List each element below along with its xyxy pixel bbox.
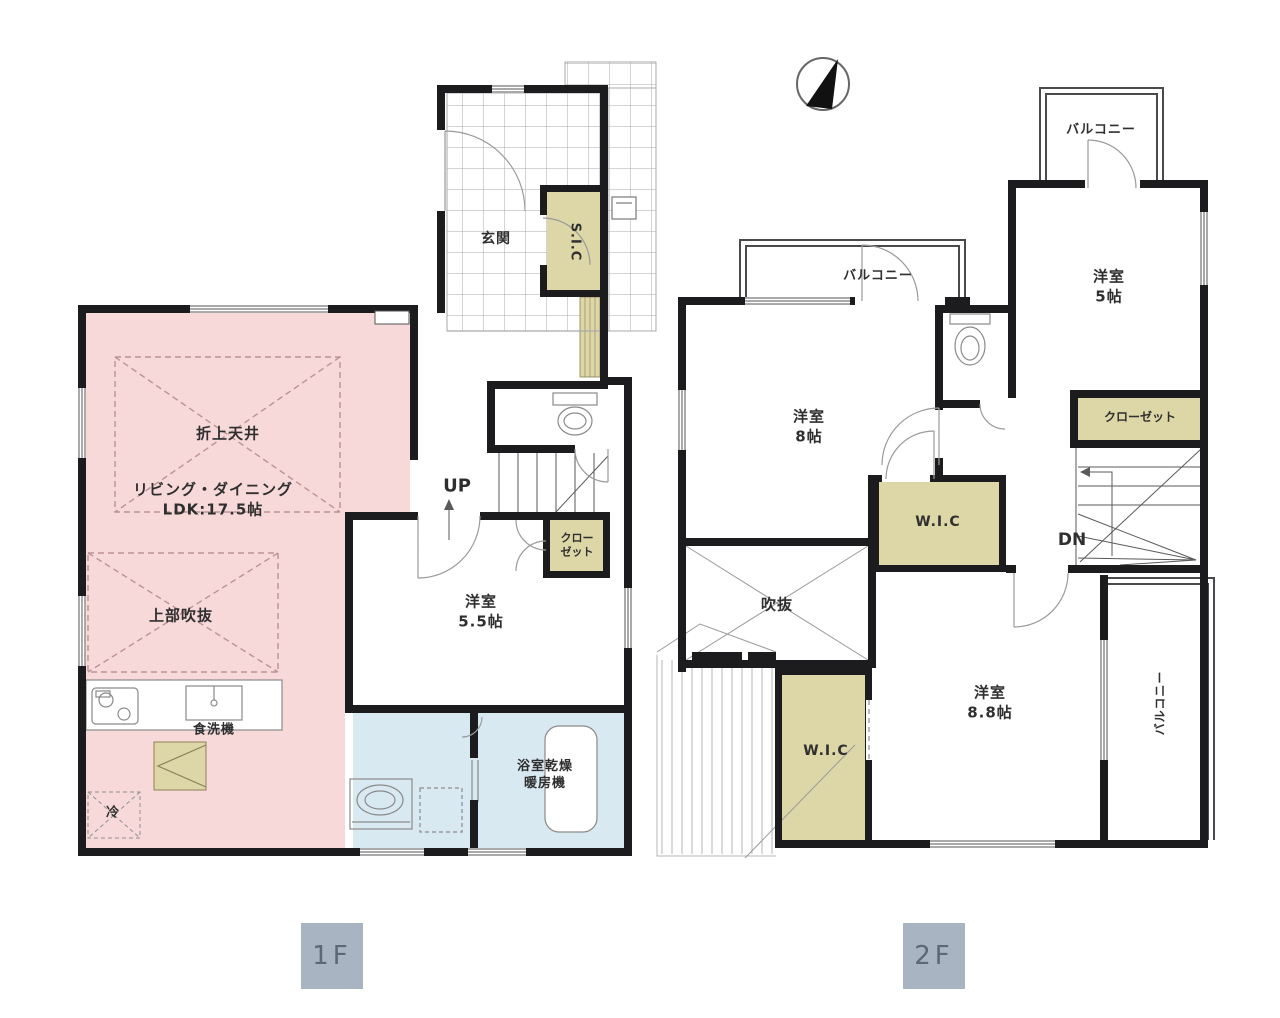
room-label-yoshitsu-8: 洋室 8帖 (793, 408, 825, 447)
floor2-stairs (1076, 448, 1200, 565)
room-label-living-dining: リビング・ダイニング LDK:17.5帖 (133, 481, 293, 520)
room-label-genkan: 玄関 (481, 230, 511, 248)
north-compass-icon (797, 58, 849, 110)
room-label-fukinuke: 吹抜 (761, 595, 793, 615)
room-label-joubu-fukinuke: 上部吹抜 (149, 606, 213, 626)
floor1-badge: 1F (301, 923, 363, 989)
room-label-yoshitsu-88: 洋室 8.8帖 (967, 684, 1013, 723)
floor2-fills (782, 398, 1203, 843)
floorplan-canvas: 玄関 S.I.C 折上天井 リビング・ダイニング LDK:17.5帖 上部吹抜 … (0, 0, 1280, 1018)
room-label-wic-upper: W.I.C (915, 513, 960, 531)
stairs-dn-label: DN (1058, 529, 1086, 551)
floor2-badge: 2F (903, 923, 965, 989)
label-refrigerator: 冷 (106, 806, 120, 823)
label-bath-dryer: 浴室乾燥 暖房機 (517, 759, 573, 793)
room-label-wic-lower: W.I.C (803, 742, 848, 760)
room-label-yoshitsu-55: 洋室 5.5帖 (458, 593, 504, 632)
floor2-fixtures (950, 314, 990, 365)
floor2-doors (862, 140, 1136, 760)
room-label-oriage-tenjo: 折上天井 (196, 424, 260, 444)
room-label-sic: S.I.C (566, 223, 583, 262)
room-label-closet-1f: クロー ゼット (561, 532, 594, 561)
room-label-yoshitsu-5: 洋室 5帖 (1093, 268, 1125, 307)
label-balcony-left: バルコニー (843, 269, 913, 286)
room-label-closet-2f: クローゼット (1104, 410, 1176, 426)
label-balcony-right-top: バルコニー (1066, 123, 1136, 140)
label-dishwasher: 食洗機 (193, 723, 235, 740)
stairs-up-label: UP (443, 474, 471, 497)
label-balcony-side: バルコニー (1153, 671, 1169, 736)
